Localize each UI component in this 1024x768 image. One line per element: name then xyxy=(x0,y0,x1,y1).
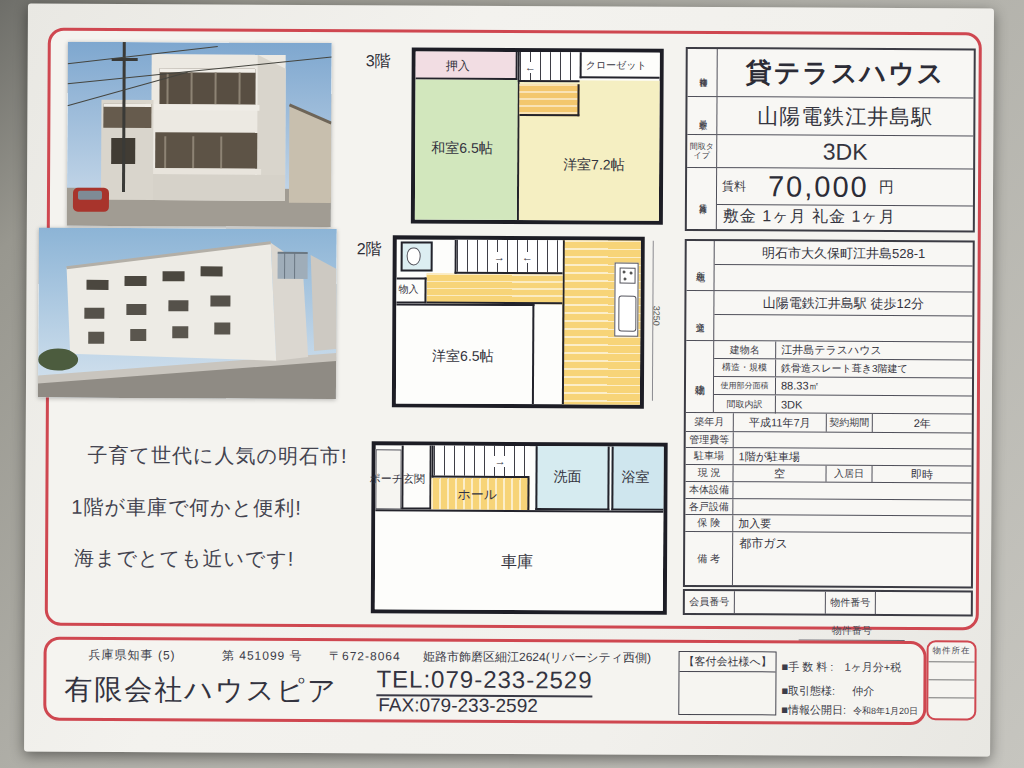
main-equip-value xyxy=(733,482,971,499)
catch-copy-line-1: 子育て世代に人気の明石市! xyxy=(88,442,348,470)
room-garage-label: 車庫 xyxy=(501,552,533,573)
main-equip-label: 本体設備 xyxy=(685,482,733,498)
building-name-value: 江井島テラスハウス xyxy=(776,341,972,359)
area-label: 使用部分面積 xyxy=(714,377,776,394)
property-type-value: 貸テラスハウス xyxy=(718,49,974,97)
exterior-photo-2 xyxy=(38,228,337,400)
hall-1f-label: ホール xyxy=(457,486,497,504)
room-youshitsu-65-label: 洋室6.5帖 xyxy=(432,348,494,366)
fee-label: ■手 数 料 : xyxy=(781,660,833,672)
floorplan-2f: → → ← 物入 洋室6.5帖 xyxy=(392,235,645,408)
status-label: 現 況 xyxy=(685,465,733,481)
area-value: 88.33㎡ xyxy=(776,377,972,395)
mgmt-label: 管理費等 xyxy=(686,432,734,447)
number-strip: 会員番号 物件番号 xyxy=(683,589,973,617)
unit-equip-label: 各戸設備 xyxy=(685,499,733,514)
structure-label: 構造・規模 xyxy=(714,359,776,376)
movein-label: 入居日 xyxy=(826,466,872,482)
catch-copy-line-3: 海までとても近いです! xyxy=(74,545,294,573)
stairs-2f-arrow-icon: → xyxy=(493,252,506,263)
property-location-row xyxy=(928,679,974,697)
built-value: 平成11年7月 xyxy=(734,413,827,431)
fee-value: 1ヶ月分+税 xyxy=(844,661,901,673)
term-value: 2年 xyxy=(873,414,972,433)
license-number: 第 451099 号 xyxy=(222,648,303,662)
footer-frame: 兵庫県知事 (5) 第 451099 号 〒672-8064 姫路市飾磨区細江2… xyxy=(43,637,926,726)
structure-value: 鉄骨造スレート葺き3階建て xyxy=(776,359,972,377)
terms-label: 賃貸条件 xyxy=(696,196,707,200)
deal-value: 仲介 xyxy=(852,685,874,697)
agents-box: 【客付会社様へ】 xyxy=(678,651,776,716)
governor-license: 兵庫県知事 (5) xyxy=(89,648,176,662)
exterior-photo-2-image xyxy=(38,228,337,400)
property-location-label: 物件所在 xyxy=(929,642,975,657)
dimension-3250: 3250 xyxy=(651,306,661,326)
room-oshiire-label: 押入 xyxy=(446,58,470,75)
property-no-label: 物件番号 xyxy=(826,592,876,614)
tel-number: TEL:079-233-2529 xyxy=(376,665,592,697)
detail-table: 所在地 明石市大久保町江井島528-1 交通 山陽電鉄江井島駅 徒歩12分 建物 xyxy=(683,239,975,589)
layout-detail-label: 間取内訳 xyxy=(714,395,776,413)
room-washitsu-label: 和室6.5帖 xyxy=(431,140,493,158)
room-senmen-label: 洗面 xyxy=(553,468,581,486)
toilet-icon xyxy=(407,247,421,265)
location-value: 明石市大久保町江井島528-1 xyxy=(762,244,925,263)
corridor-2f xyxy=(426,274,562,305)
station-label: 最寄駅 xyxy=(696,114,707,117)
access-label: 交通 xyxy=(693,314,706,316)
status-value: 空 xyxy=(733,465,826,481)
porch-genkan-label: ポーチ玄関 xyxy=(369,471,425,486)
room-closet-label: クローゼット xyxy=(586,58,647,72)
notes-label: 備 考 xyxy=(685,532,733,585)
location-label: 所在地 xyxy=(694,264,707,267)
property-location-box: 物件所在 xyxy=(926,640,976,720)
fax-number: FAX:079-233-2592 xyxy=(378,694,538,717)
unit-equip-value xyxy=(733,499,971,515)
member-no-label: 会員番号 xyxy=(685,591,735,613)
room-bath-label: 浴室 xyxy=(621,469,649,487)
built-label: 築年月 xyxy=(686,413,734,431)
floorplan-1f: ポーチ玄関 ホール → 洗面 浴室 車庫 xyxy=(371,441,668,615)
exterior-photo-1-image xyxy=(67,42,332,227)
floor-label-2f: 2階 xyxy=(357,239,382,260)
floor-label-3f: 3階 xyxy=(366,51,391,72)
hall-3f xyxy=(519,84,579,116)
published-value: 令和8年1月20日 xyxy=(853,706,918,716)
property-location-row xyxy=(928,697,974,715)
company-name: 有限会社ハウスピア xyxy=(64,671,337,710)
room-monoire-label: 物入 xyxy=(398,282,418,296)
room-youshitsu-72-label: 洋室7.2帖 xyxy=(563,156,625,174)
postal-code: 〒672-8064 xyxy=(329,649,401,663)
insurance-label: 保 険 xyxy=(685,515,733,531)
stairs-1f-arrow-icon: → xyxy=(494,456,507,467)
movein-value: 即時 xyxy=(872,466,971,483)
stairs-2f-arrow2-icon: ← xyxy=(521,252,534,263)
term-label: 契約期間 xyxy=(827,414,873,432)
notes-value: 都市ガス xyxy=(733,532,971,586)
insurance-value: 加入要 xyxy=(733,515,971,532)
sink-icon xyxy=(618,296,636,332)
price-table: 物件種目 貸テラスハウス 最寄駅 山陽電鉄江井島駅 間取タイプ 3DK 賃貸条件… xyxy=(685,47,976,233)
kitchen-counter xyxy=(614,263,638,337)
exterior-photo-1 xyxy=(67,42,332,227)
agents-box-title: 【客付会社様へ】 xyxy=(679,652,775,673)
building-name-label: 建物名 xyxy=(714,341,776,358)
deposit-line: 敷金 1ヶ月 礼金 1ヶ月 xyxy=(723,206,896,228)
floorplan-3f: 押入 ← クローゼット 和室6.5帖 洋室7.2帖 xyxy=(411,47,664,224)
building-label: 建物 xyxy=(693,375,707,377)
member-no-value xyxy=(735,591,826,613)
mgmt-value xyxy=(734,432,972,448)
rent-value: 70,000 xyxy=(768,170,869,204)
rent-label: 賃料 xyxy=(722,178,746,195)
parking-label: 駐車場 xyxy=(686,448,734,464)
stairs-1f xyxy=(432,446,530,479)
parking-value: 1階が駐車場 xyxy=(734,448,972,465)
property-location-row xyxy=(928,661,974,679)
office-address: 姫路市飾磨区細江2624(リバーシティ西側) xyxy=(423,650,651,665)
flyer-sheet: 子育て世代に人気の明石市! 1階が車庫で何かと便利! 海までとても近いです! 3… xyxy=(0,0,1024,768)
stairs-2f xyxy=(455,240,563,275)
rent-unit: 円 xyxy=(879,177,894,196)
property-no-value xyxy=(876,592,971,614)
property-type-label: 物件種目 xyxy=(697,70,708,74)
stove-icon xyxy=(620,268,636,284)
published-label: ■情報公開日: xyxy=(781,703,846,715)
layout-detail-value: 3DK xyxy=(776,395,972,414)
plan-type-value: 3DK xyxy=(717,135,973,168)
toilet-2f xyxy=(401,241,433,271)
deal-label: ■取引態様: xyxy=(781,684,835,696)
catch-copy-line-2: 1階が車庫で何かと便利! xyxy=(71,494,302,522)
property-no-top-label: 物件番号 xyxy=(799,624,905,642)
plan-type-label: 間取タイプ xyxy=(687,142,716,161)
station-value: 山陽電鉄江井島駅 xyxy=(717,97,973,135)
stairs-3f-arrow-icon: ← xyxy=(524,62,537,73)
access-value: 山陽電鉄江井島駅 徒歩12分 xyxy=(763,294,924,313)
